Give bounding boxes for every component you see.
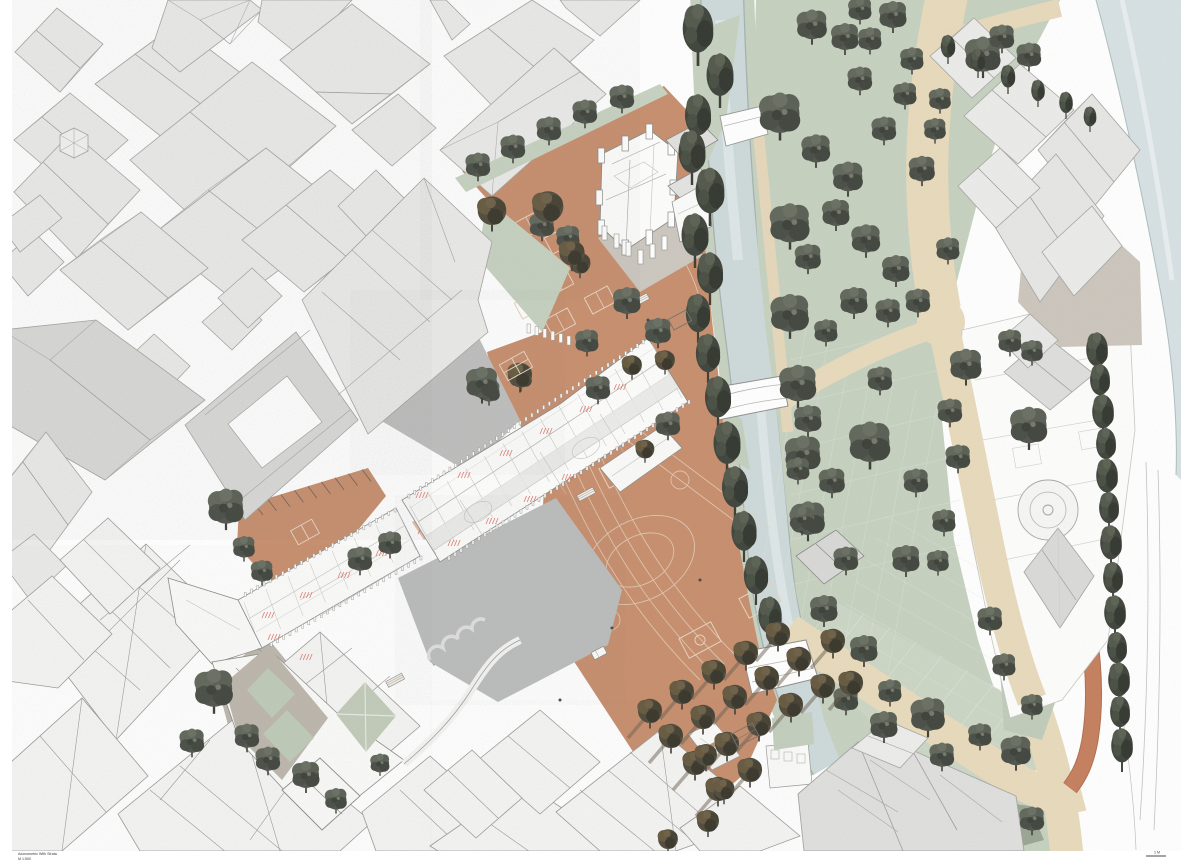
svg-text:Axonometric With Strata: Axonometric With Strata: [18, 852, 57, 856]
svg-text:1 M: 1 M: [1154, 851, 1160, 855]
svg-text:M 1:500: M 1:500: [18, 857, 31, 861]
